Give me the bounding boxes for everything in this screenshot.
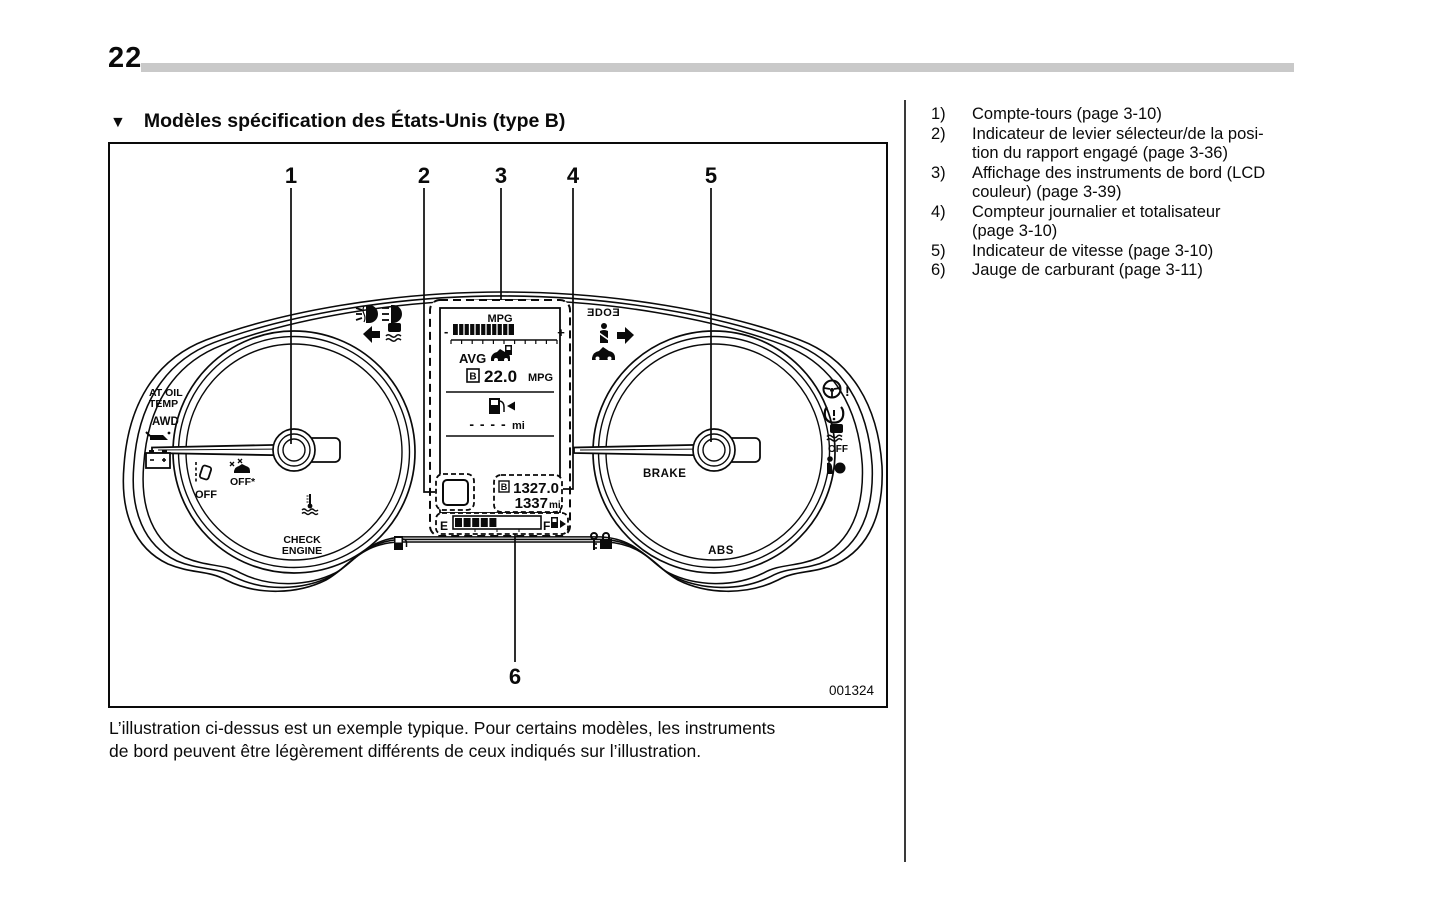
- legend-list: 1) Compte-tours (page 3-10) 2) Indicateu…: [931, 105, 1361, 281]
- legend-item-text: couleur) (page 3-39): [972, 183, 1265, 203]
- fuel-full-label: F: [543, 519, 550, 533]
- avg-value: 22.0: [484, 367, 517, 386]
- legend-item-text: tion du rapport engagé (page 3-36): [972, 144, 1264, 164]
- legend-item-3: 3) Affichage des instruments de bord (LC…: [931, 164, 1361, 203]
- legend-item-text: Compteur journalier et totalisateur: [972, 203, 1221, 223]
- check-engine-label-line2: ENGINE: [282, 545, 322, 557]
- legend-item-number: 4): [931, 203, 972, 242]
- callout-2: 2: [418, 163, 430, 188]
- legend-item-number: 1): [931, 105, 972, 125]
- legend-item-text: Affichage des instruments de bord (LCD: [972, 164, 1265, 184]
- avg-label: AVG: [459, 351, 486, 366]
- legend-item-text: Indicateur de vitesse (page 3-10): [972, 242, 1213, 262]
- caption-line2: de bord peuvent être légèrement différen…: [109, 740, 775, 763]
- column-divider: [904, 100, 906, 862]
- page-number: 22: [108, 42, 142, 75]
- vdc-indicator-icon: [386, 323, 401, 341]
- mpg-plus: +: [557, 325, 565, 340]
- legend-item-number: 3): [931, 164, 972, 203]
- battery-charge-icon: [146, 450, 170, 468]
- callout-6: 6: [509, 664, 521, 689]
- section-heading: ▼ Modèles spécification des États-Unis (…: [110, 110, 565, 133]
- odometer-unit: mi: [549, 500, 561, 511]
- airbag-warning-icon: [827, 456, 846, 474]
- turn-right-arrow-icon: [617, 327, 634, 344]
- fog-light-icon: [356, 305, 378, 323]
- section-title: Modèles spécification des États-Unis (ty…: [144, 110, 566, 133]
- turn-left-arrow-icon: [363, 326, 380, 343]
- trip-selector-badge: B: [469, 372, 476, 383]
- range-value: - - - -: [469, 416, 506, 432]
- fuel-empty-label: E: [440, 519, 448, 533]
- seatbelt-warning-icon: [599, 323, 609, 343]
- cruise-set-indicator: ƎDOƎ: [587, 307, 620, 319]
- figure-id-code: 001324: [829, 683, 875, 698]
- brake-label: BRAKE: [643, 468, 686, 480]
- callout-4: 4: [567, 163, 580, 188]
- mpg-minus: -: [444, 324, 448, 339]
- abs-label: ABS: [708, 545, 734, 557]
- legend-item-4: 4) Compteur journalier et totalisateur (…: [931, 203, 1361, 242]
- at-oil-temp-label-line2: TEMP: [149, 398, 178, 410]
- legend-item-number: 5): [931, 242, 972, 262]
- legend-item-text: Jauge de carburant (page 3-11): [972, 261, 1203, 281]
- range-unit: mi: [512, 420, 525, 432]
- speedometer-gauge: [574, 331, 835, 573]
- steering-warning-icon: [824, 381, 841, 398]
- header-rule: [141, 63, 1294, 72]
- vdc-off-label: OFF: [828, 444, 848, 455]
- steering-warning-bang: !: [845, 383, 850, 399]
- legend-item-text: Compte-tours (page 3-10): [972, 105, 1162, 125]
- high-beam-icon: [382, 305, 402, 323]
- oil-pressure-icon: [146, 432, 170, 440]
- callout-5: 5: [705, 163, 717, 188]
- lane-off-label: OFF: [195, 489, 217, 501]
- legend-item-6: 6) Jauge de carburant (page 3-11): [931, 261, 1361, 281]
- legend-item-5: 5) Indicateur de vitesse (page 3-10): [931, 242, 1361, 262]
- trip-selector-badge: B: [501, 482, 508, 492]
- mpg-title: MPG: [487, 313, 512, 325]
- triangle-marker-icon: ▼: [110, 114, 126, 132]
- low-fuel-icon: [394, 536, 407, 550]
- lcd-display: MPG - + AVG: [430, 300, 570, 536]
- security-car-icon: [592, 347, 615, 361]
- legend-item-1: 1) Compte-tours (page 3-10): [931, 105, 1361, 125]
- fuel-gauge: E F: [436, 513, 568, 534]
- legend-item-2: 2) Indicateur de levier sélecteur/de la …: [931, 125, 1361, 164]
- legend-item-number: 2): [931, 125, 972, 164]
- gear-position-indicator: [436, 474, 474, 510]
- legend-item-text: (page 3-10): [972, 222, 1221, 242]
- legend-item-number: 6): [931, 261, 972, 281]
- callout-1: 1: [285, 163, 297, 188]
- cluster-illustration: MPG - + AVG: [110, 144, 886, 706]
- security-key-icon: [591, 533, 612, 550]
- sway-off-label: OFF*: [230, 476, 256, 488]
- instrument-cluster-figure: MPG - + AVG: [108, 142, 888, 708]
- avg-unit: MPG: [528, 372, 553, 384]
- awd-label: AWD: [152, 416, 179, 428]
- callout-3: 3: [495, 163, 507, 188]
- figure-caption: L’illustration ci-dessus est un exemple …: [109, 717, 775, 762]
- odometer-trip-meter: B 1327.0 1337 mi: [494, 475, 562, 512]
- caption-line1: L’illustration ci-dessus est un exemple …: [109, 717, 775, 740]
- odometer-value: 1337: [515, 495, 548, 512]
- legend-item-text: Indicateur de levier sélecteur/de la pos…: [972, 125, 1264, 145]
